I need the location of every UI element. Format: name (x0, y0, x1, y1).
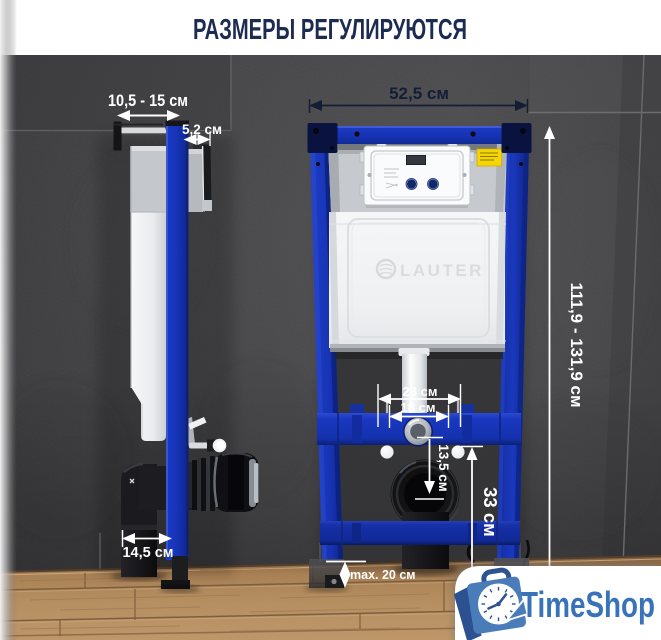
svg-text:23 см: 23 см (403, 384, 438, 399)
svg-text:LAUTER: LAUTER (400, 261, 484, 280)
svg-text:5,2 см: 5,2 см (182, 122, 222, 137)
svg-text:33 см: 33 см (480, 487, 501, 537)
svg-text:13,5 см: 13,5 см (436, 444, 451, 492)
svg-text:max. 20 см: max. 20 см (350, 568, 416, 582)
svg-text:РАЗМЕРЫ РЕГУЛИРУЮТСЯ: РАЗМЕРЫ РЕГУЛИРУЮТСЯ (193, 14, 467, 46)
svg-text:18 см: 18 см (401, 400, 436, 415)
svg-text:52,5 см: 52,5 см (389, 84, 449, 103)
svg-text:14,5 см: 14,5 см (122, 545, 173, 561)
svg-text:111,9 - 131,9 см: 111,9 - 131,9 см (567, 282, 586, 407)
svg-text:10,5 - 15 см: 10,5 - 15 см (108, 91, 188, 110)
svg-text:TimeShop: TimeShop (521, 584, 655, 625)
